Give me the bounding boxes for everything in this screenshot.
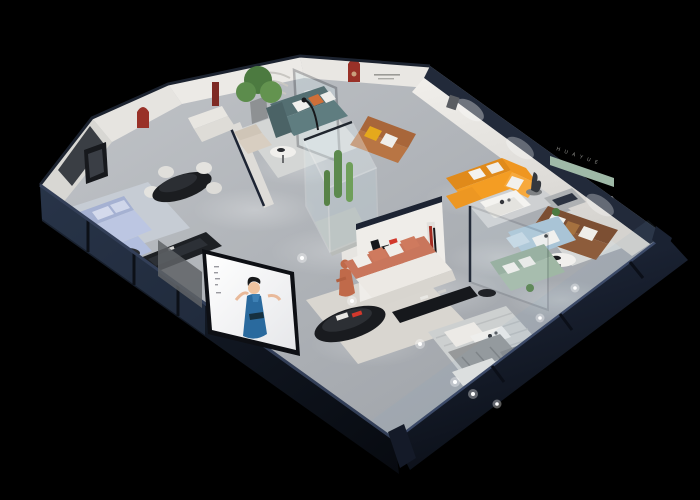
red-arch-niche-2 xyxy=(348,59,360,82)
isometric-scene: H U A Y U E xyxy=(0,0,700,500)
cactus xyxy=(324,170,330,206)
cactus xyxy=(334,150,342,198)
cactus xyxy=(346,162,353,202)
red-arch-niche xyxy=(137,107,149,128)
wall-sign-text-lines xyxy=(374,74,400,76)
wall-sign-text-lines2 xyxy=(378,78,394,79)
dining-chair xyxy=(206,182,222,194)
red-slot-niche xyxy=(212,82,219,106)
dining-chair xyxy=(158,166,174,178)
niche-figurine xyxy=(352,72,357,77)
showroom-render: H U A Y U E xyxy=(0,0,700,500)
dining-chair xyxy=(196,162,212,174)
